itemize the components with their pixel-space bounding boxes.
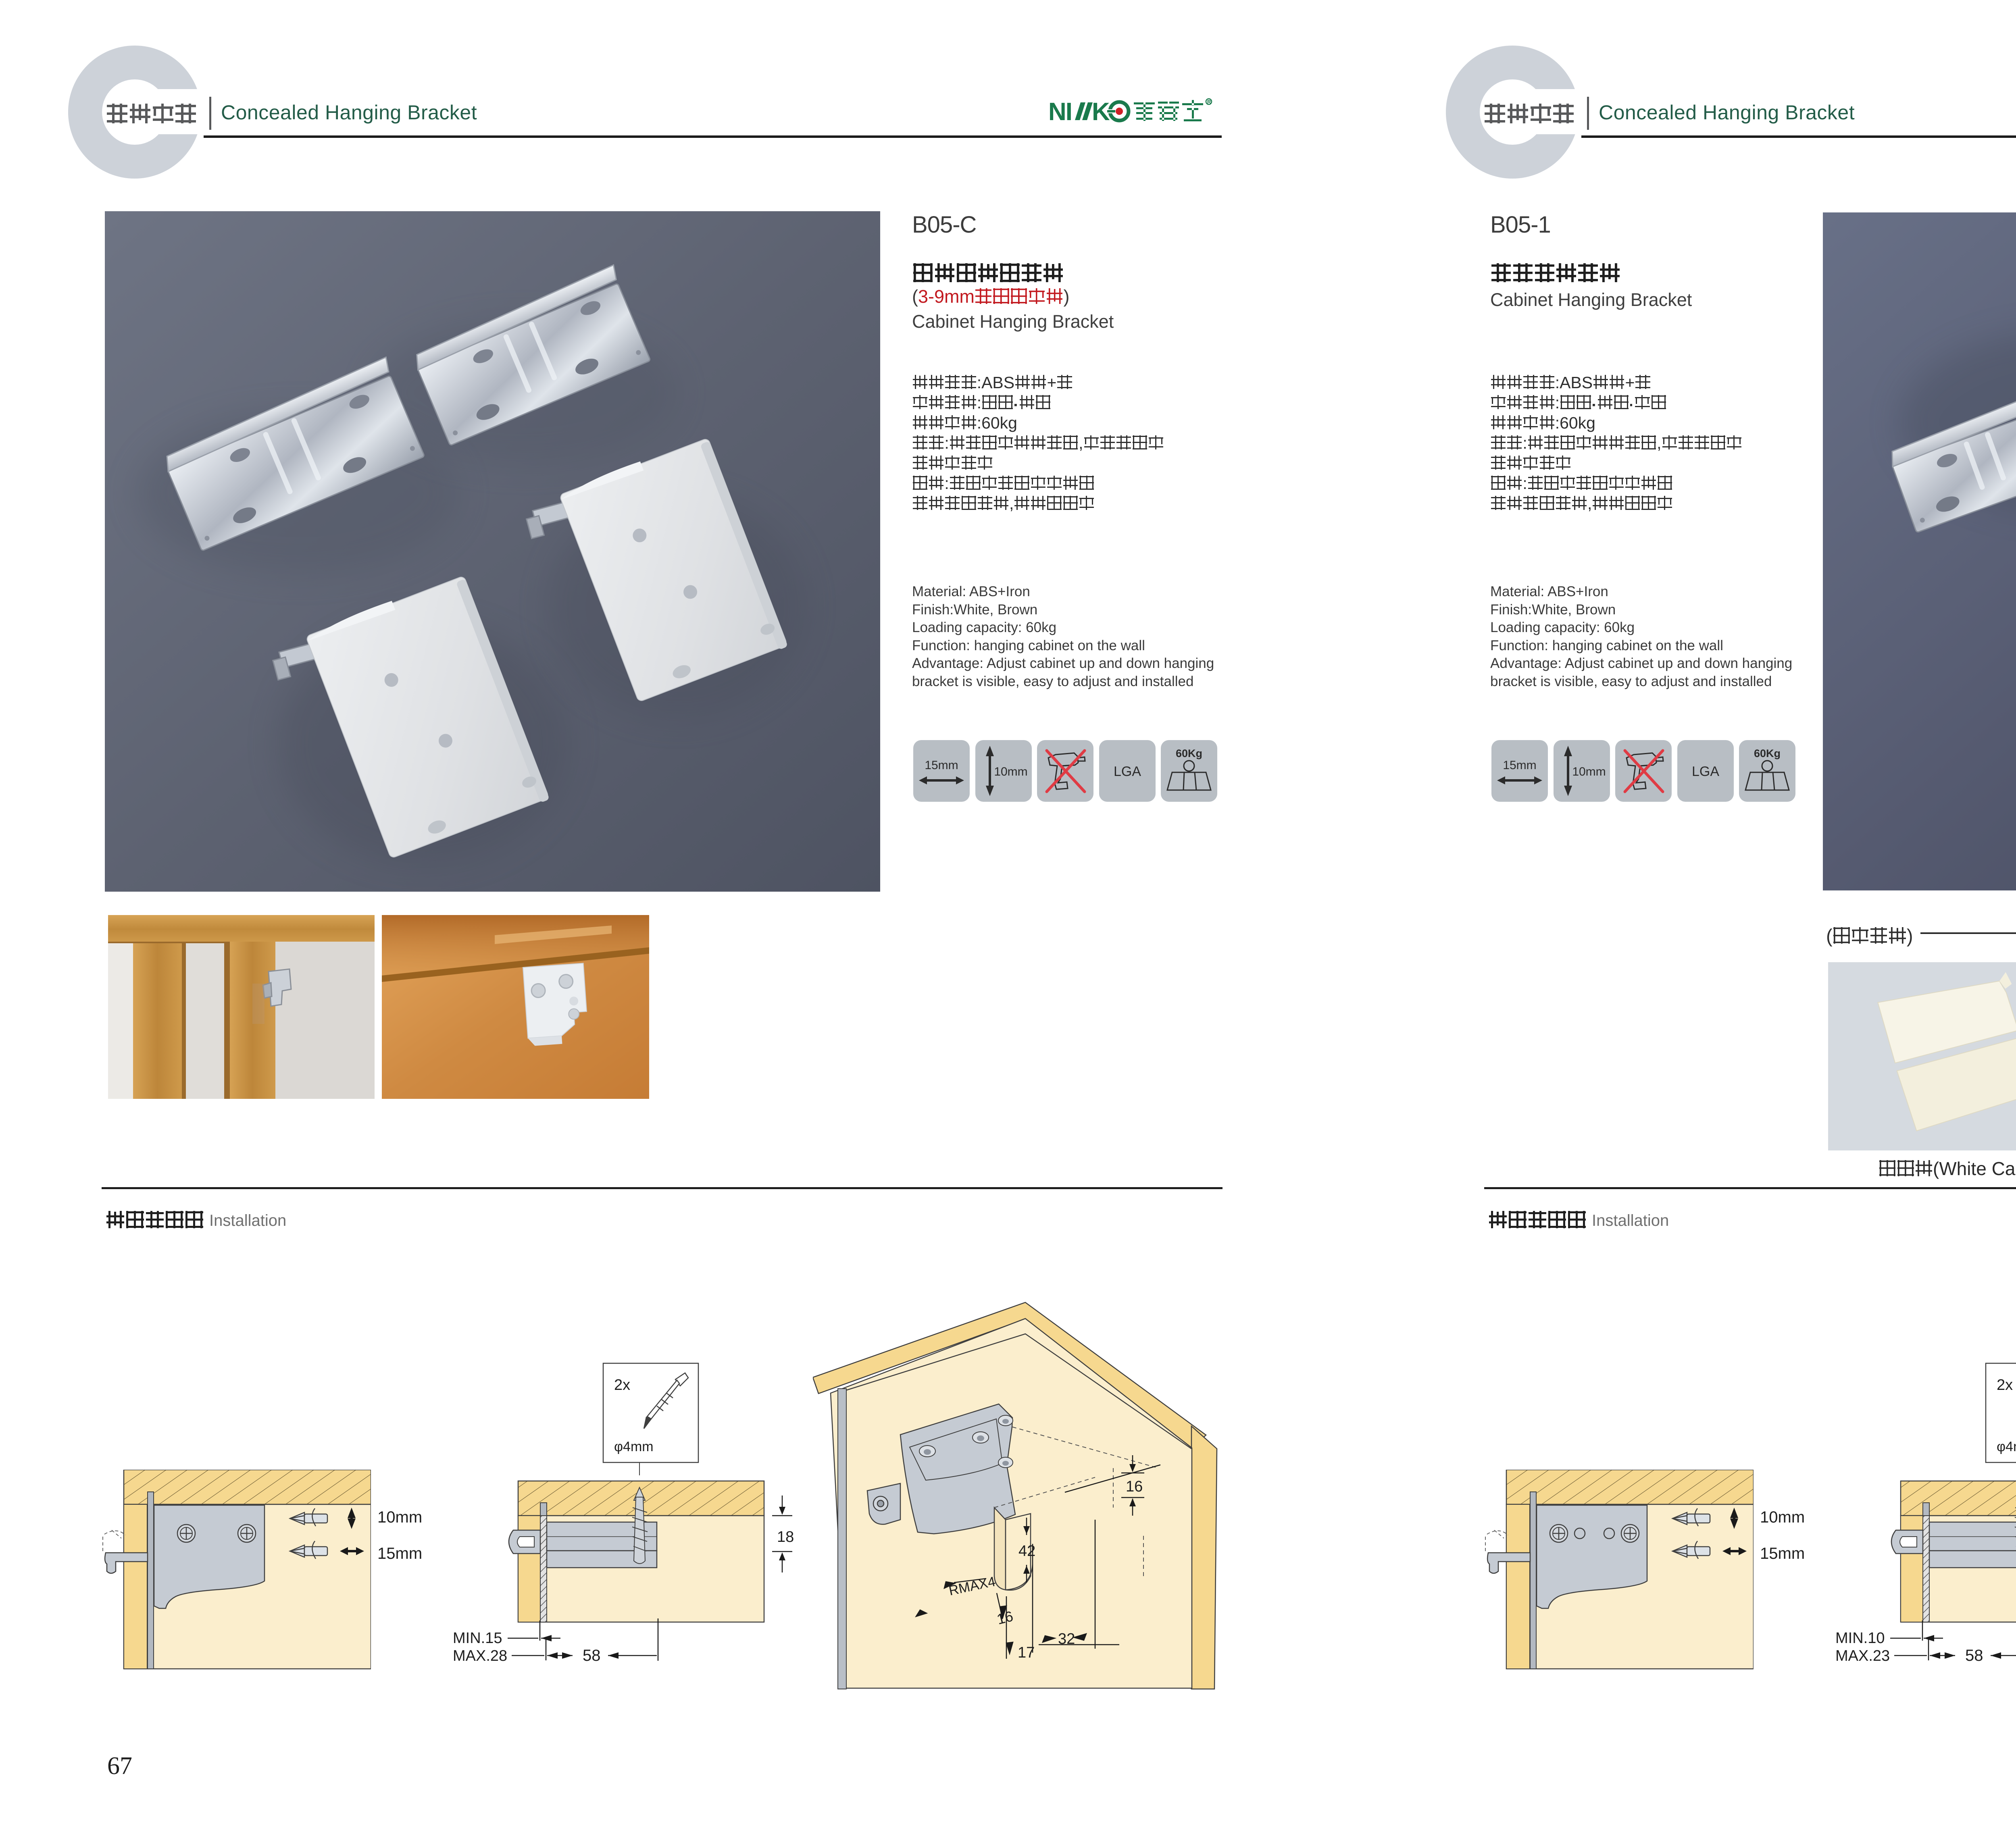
svg-text:60Kg: 60Kg xyxy=(1176,747,1202,759)
svg-text:MAX.28: MAX.28 xyxy=(453,1647,507,1664)
svg-text:φ4mm: φ4mm xyxy=(614,1439,654,1454)
svg-text:18: 18 xyxy=(777,1529,794,1545)
svg-text:60Kg: 60Kg xyxy=(1754,747,1781,759)
svg-text:58: 58 xyxy=(1965,1647,1983,1664)
svg-text:LGA: LGA xyxy=(1692,764,1719,779)
svg-text:10mm: 10mm xyxy=(1572,765,1606,778)
svg-text:15mm: 15mm xyxy=(925,759,958,772)
svg-text:10mm: 10mm xyxy=(994,765,1027,778)
svg-text:17: 17 xyxy=(1018,1644,1035,1661)
svg-text:2x: 2x xyxy=(1997,1377,2013,1394)
svg-text:LGA: LGA xyxy=(1114,764,1141,779)
svg-text:2x: 2x xyxy=(614,1377,630,1394)
svg-text:MAX.23: MAX.23 xyxy=(1835,1647,1890,1664)
svg-text:R: R xyxy=(1207,99,1211,105)
svg-text:MIN.15: MIN.15 xyxy=(453,1630,502,1647)
svg-text:16: 16 xyxy=(1126,1478,1143,1495)
svg-text:58: 58 xyxy=(583,1647,601,1664)
svg-text:42: 42 xyxy=(1018,1543,1035,1560)
svg-text:15mm: 15mm xyxy=(1503,759,1536,772)
svg-text:φ4mm: φ4mm xyxy=(1997,1439,2016,1454)
svg-text:32: 32 xyxy=(1058,1631,1075,1647)
svg-text:MIN.10: MIN.10 xyxy=(1835,1630,1885,1647)
svg-text:NI: NI xyxy=(1048,98,1072,126)
